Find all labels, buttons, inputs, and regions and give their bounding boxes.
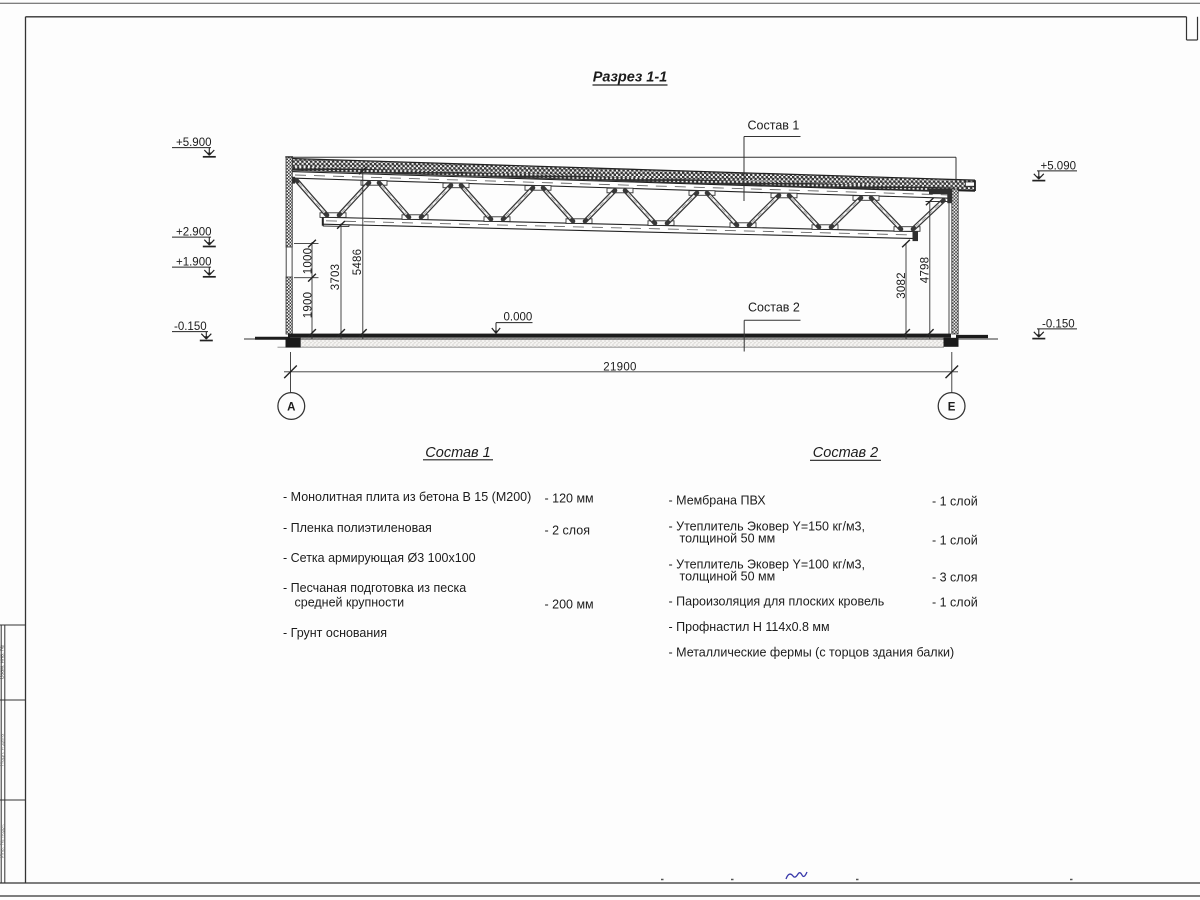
svg-text:- 1 слой: - 1 слой xyxy=(932,596,978,610)
svg-text:толщиной 50 мм: толщиной 50 мм xyxy=(680,531,776,545)
svg-text:4798: 4798 xyxy=(920,257,932,283)
svg-text:- Грунт основания: - Грунт основания xyxy=(283,626,387,640)
svg-text:Е: Е xyxy=(948,401,956,413)
svg-text:Состав 2: Состав 2 xyxy=(813,445,878,461)
svg-text:1000: 1000 xyxy=(303,248,315,274)
svg-text:- Профнастил Н 114х0.8 мм: - Профнастил Н 114х0.8 мм xyxy=(669,620,830,634)
svg-text:- 1 слой: - 1 слой xyxy=(932,495,978,509)
svg-text:- Мембрана ПВХ: - Мембрана ПВХ xyxy=(669,493,767,507)
svg-text:- 2 слоя: - 2 слоя xyxy=(545,524,590,538)
svg-text:- Металлические фермы (с торцо: - Металлические фермы (с торцов здания б… xyxy=(669,645,955,659)
svg-text:1900: 1900 xyxy=(303,292,315,318)
svg-text:- 1 слой: - 1 слой xyxy=(932,534,978,548)
svg-text:Состав 2: Состав 2 xyxy=(748,300,800,314)
svg-text:- 3 слоя: - 3 слоя xyxy=(932,571,977,585)
svg-text:Состав 1: Состав 1 xyxy=(425,445,490,461)
svg-text:- Пленка полиэтиленовая: - Пленка полиэтиленовая xyxy=(283,521,432,535)
svg-text:Взам. инв. №: Взам. инв. № xyxy=(0,645,6,679)
svg-text:А: А xyxy=(287,401,295,413)
svg-text:Инв. № подл.: Инв. № подл. xyxy=(0,823,6,858)
svg-text:- Песчаная подготовка из песка: - Песчаная подготовка из песка xyxy=(283,581,466,595)
svg-text:- Сетка армирующая Ø3 100х100: - Сетка армирующая Ø3 100х100 xyxy=(283,551,476,565)
svg-text:21900: 21900 xyxy=(603,361,636,373)
svg-text:0.000: 0.000 xyxy=(504,311,533,323)
svg-text:средней крупности: средней крупности xyxy=(295,595,405,609)
svg-text:- Пароизоляция для плоских кро: - Пароизоляция для плоских кровель xyxy=(669,594,885,608)
svg-text:5486: 5486 xyxy=(352,249,364,275)
svg-text:3703: 3703 xyxy=(330,264,342,290)
svg-text:Подп. и дата: Подп. и дата xyxy=(0,733,6,766)
svg-text:- 200 мм: - 200 мм xyxy=(545,598,594,612)
svg-text:- 120 мм: - 120 мм xyxy=(545,492,594,506)
svg-text:3082: 3082 xyxy=(896,272,908,298)
svg-text:Состав 1: Состав 1 xyxy=(748,119,800,133)
svg-text:толщиной 50 мм: толщиной 50 мм xyxy=(680,569,776,583)
svg-text:Разрез 1-1: Разрез 1-1 xyxy=(593,70,667,86)
svg-text:- Монолитная плита из бетона В: - Монолитная плита из бетона В 15 (М200) xyxy=(283,490,531,504)
